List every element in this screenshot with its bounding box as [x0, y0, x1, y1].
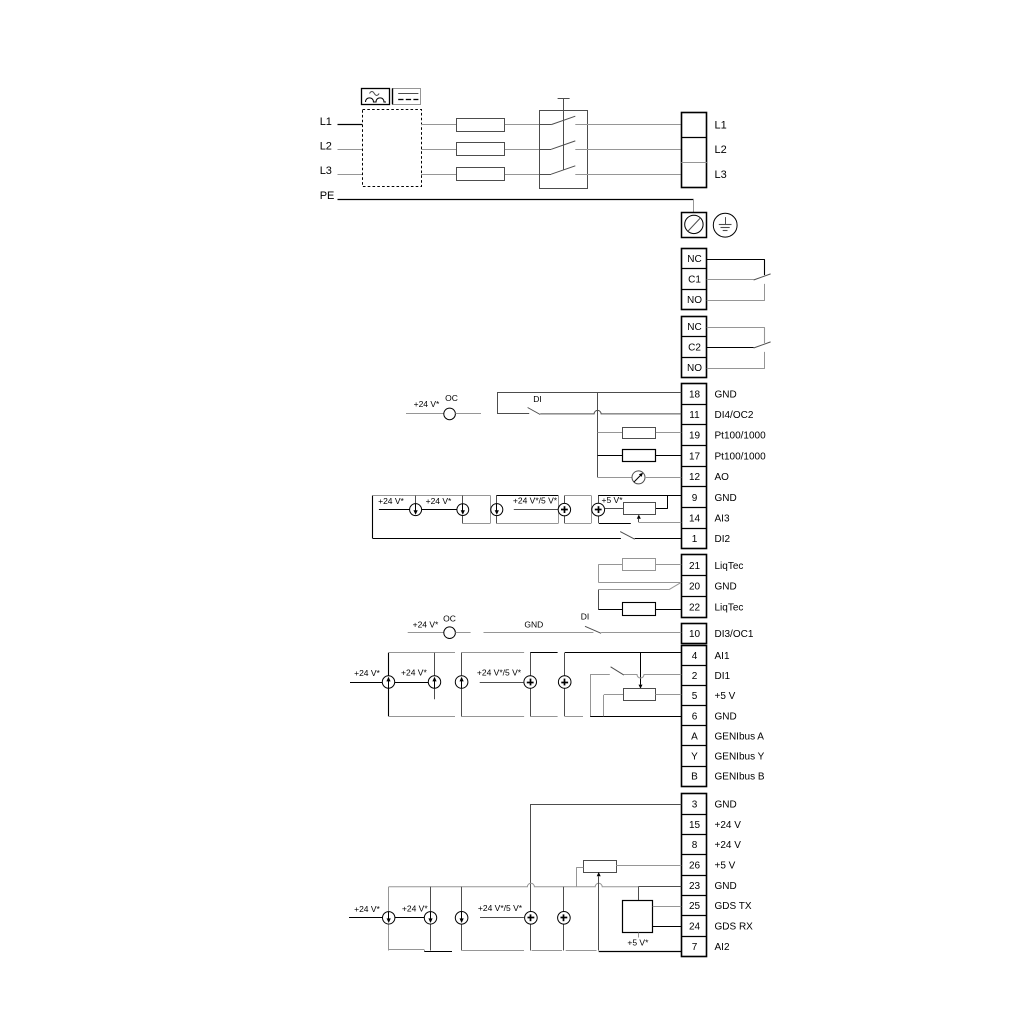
svg-text:AI3: AI3 — [715, 513, 730, 524]
svg-text:C2: C2 — [688, 343, 701, 354]
svg-text:17: 17 — [689, 451, 701, 462]
svg-text:5: 5 — [692, 691, 698, 702]
svg-text:18: 18 — [689, 389, 701, 400]
svg-text:NO: NO — [687, 295, 702, 306]
svg-text:DI3/OC1: DI3/OC1 — [715, 629, 754, 640]
svg-text:PE: PE — [320, 190, 335, 202]
svg-text:25: 25 — [689, 901, 701, 912]
svg-text:+5 V*: +5 V* — [627, 938, 649, 948]
svg-text:DI4/OC2: DI4/OC2 — [715, 410, 754, 421]
svg-text:15: 15 — [689, 820, 701, 831]
svg-text:+24 V*: +24 V* — [426, 496, 452, 506]
svg-text:NC: NC — [687, 254, 701, 265]
svg-text:L3: L3 — [320, 165, 332, 177]
svg-text:NO: NO — [687, 363, 702, 374]
svg-text:+5 V*: +5 V* — [601, 495, 623, 505]
svg-text:+24 V*/5 V*: +24 V*/5 V* — [478, 903, 523, 913]
svg-text:GDS TX: GDS TX — [715, 901, 752, 912]
svg-text:Y: Y — [691, 752, 698, 763]
svg-text:LiqTec: LiqTec — [715, 561, 744, 572]
svg-text:21: 21 — [689, 561, 701, 572]
svg-text:+24 V*: +24 V* — [401, 668, 427, 678]
svg-text:GND: GND — [524, 619, 543, 629]
svg-text:+5 V: +5 V — [715, 861, 736, 872]
svg-text:4: 4 — [692, 651, 698, 662]
svg-text:12: 12 — [689, 472, 701, 483]
svg-text:AI1: AI1 — [715, 651, 730, 662]
svg-text:GDS RX: GDS RX — [715, 922, 754, 933]
svg-text:22: 22 — [689, 602, 701, 613]
svg-text:24: 24 — [689, 922, 701, 933]
svg-text:GENIbus B: GENIbus B — [715, 772, 765, 783]
svg-text:9: 9 — [692, 493, 698, 504]
svg-text:+24 V: +24 V — [715, 840, 742, 851]
svg-text:GND: GND — [715, 389, 737, 400]
svg-text:L1: L1 — [320, 116, 332, 128]
svg-text:NC: NC — [687, 322, 701, 333]
svg-text:11: 11 — [689, 410, 700, 421]
svg-text:2: 2 — [692, 671, 698, 682]
svg-text:+24 V*/5 V*: +24 V*/5 V* — [477, 668, 522, 678]
svg-text:1: 1 — [692, 534, 698, 545]
svg-text:GND: GND — [715, 711, 737, 722]
svg-text:3: 3 — [692, 800, 698, 811]
svg-text:+5 V: +5 V — [715, 691, 736, 702]
svg-text:GND: GND — [715, 881, 737, 892]
svg-text:GND: GND — [715, 800, 737, 811]
svg-text:B: B — [691, 772, 698, 783]
svg-text:DI: DI — [533, 394, 542, 404]
svg-text:23: 23 — [689, 881, 701, 892]
svg-text:6: 6 — [692, 711, 698, 722]
svg-text:GND: GND — [715, 493, 737, 504]
svg-text:Pt100/1000: Pt100/1000 — [715, 431, 767, 442]
svg-text:GENIbus Y: GENIbus Y — [715, 752, 765, 763]
svg-text:10: 10 — [689, 629, 701, 640]
svg-text:C1: C1 — [688, 275, 701, 286]
svg-text:LiqTec: LiqTec — [715, 602, 744, 613]
svg-text:+24 V*: +24 V* — [413, 620, 439, 630]
svg-text:GENIbus A: GENIbus A — [715, 731, 765, 742]
svg-text:Pt100/1000: Pt100/1000 — [715, 451, 767, 462]
svg-text:AI2: AI2 — [715, 942, 730, 953]
svg-text:L2: L2 — [715, 144, 727, 156]
svg-text:8: 8 — [692, 840, 698, 851]
svg-text:OC: OC — [445, 393, 458, 403]
svg-text:DI: DI — [581, 612, 590, 622]
svg-text:20: 20 — [689, 582, 701, 593]
svg-text:26: 26 — [689, 861, 701, 872]
svg-text:+24 V*: +24 V* — [354, 668, 380, 678]
svg-text:14: 14 — [689, 513, 701, 524]
svg-text:+24 V*: +24 V* — [354, 904, 380, 914]
svg-text:19: 19 — [689, 431, 701, 442]
svg-text:7: 7 — [692, 942, 698, 953]
svg-text:GND: GND — [715, 582, 737, 593]
svg-text:OC: OC — [443, 613, 456, 623]
svg-text:A: A — [691, 731, 698, 742]
svg-text:L2: L2 — [320, 141, 332, 153]
svg-text:+24 V*: +24 V* — [402, 904, 428, 914]
svg-text:DI2: DI2 — [715, 534, 731, 545]
svg-text:+24 V*: +24 V* — [378, 496, 404, 506]
svg-text:+24 V*: +24 V* — [414, 399, 440, 409]
svg-text:+24 V: +24 V — [715, 820, 742, 831]
svg-text:AO: AO — [715, 472, 730, 483]
svg-text:L3: L3 — [715, 169, 727, 181]
svg-text:+24 V*/5 V*: +24 V*/5 V* — [513, 496, 558, 506]
svg-text:DI1: DI1 — [715, 671, 731, 682]
svg-text:L1: L1 — [715, 119, 727, 131]
